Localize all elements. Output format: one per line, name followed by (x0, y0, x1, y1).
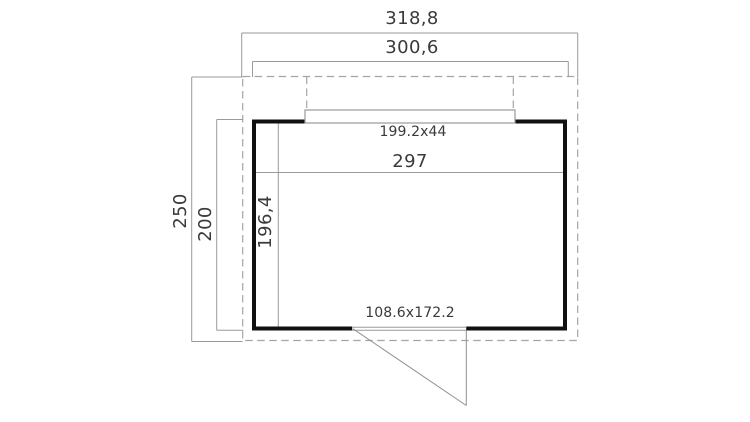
overall-depth-label: 250 (172, 193, 190, 229)
outer-wall-depth-dimension-line (217, 120, 244, 331)
window-size-label: 199.2x44 (380, 125, 447, 139)
floor-plan: 318,8 300,6 250 200 297 196,4 199.2x44 1… (0, 0, 750, 422)
window (305, 110, 515, 123)
outer-wall-depth-label: 200 (197, 206, 215, 242)
overall-width-label: 318,8 (385, 10, 439, 28)
outer-wall-width-dimension-line (253, 62, 569, 78)
inner-depth-label: 196,4 (257, 195, 275, 249)
door-size-label: 108.6x172.2 (365, 306, 455, 320)
door-opening (352, 326, 466, 333)
plan-drawing (0, 0, 750, 422)
window-projection-dashes (307, 77, 514, 111)
inner-width-label: 297 (392, 153, 428, 171)
outer-wall-width-label: 300,6 (385, 39, 439, 57)
